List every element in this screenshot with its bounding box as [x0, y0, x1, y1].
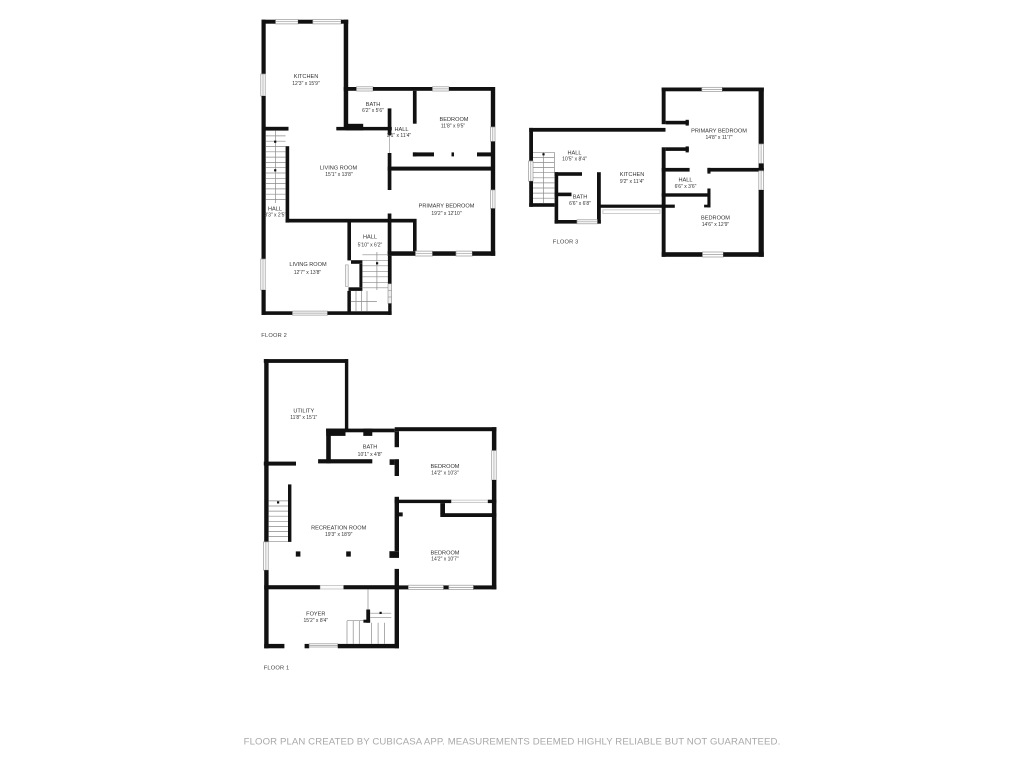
svg-text:10'1" x 4'8": 10'1" x 4'8"	[358, 452, 383, 458]
svg-text:6'6" x 6'8": 6'6" x 6'8"	[569, 201, 591, 207]
svg-text:FLOOR 2: FLOOR 2	[261, 333, 287, 339]
svg-text:19'3" x 18'9": 19'3" x 18'9"	[325, 532, 353, 538]
svg-text:14'6" x 12'9": 14'6" x 12'9"	[702, 222, 730, 228]
svg-text:15'1" x 13'8": 15'1" x 13'8"	[325, 172, 353, 178]
svg-text:FLOOR 3: FLOOR 3	[553, 239, 579, 245]
svg-text:5'10" x 6'2": 5'10" x 6'2"	[358, 242, 383, 248]
svg-text:19'2" x 12'10": 19'2" x 12'10"	[431, 211, 461, 217]
svg-text:BATH: BATH	[573, 194, 588, 200]
svg-text:6'2" x 5'6": 6'2" x 5'6"	[362, 108, 384, 114]
svg-text:BEDROOM: BEDROOM	[431, 464, 460, 470]
svg-text:14'2" x 10'7": 14'2" x 10'7"	[431, 556, 459, 562]
svg-text:11'8" x 15'1": 11'8" x 15'1"	[290, 415, 317, 421]
svg-text:KITCHEN: KITCHEN	[620, 172, 645, 178]
svg-text:LIVING ROOM: LIVING ROOM	[320, 165, 358, 171]
svg-text:FLOOR PLAN CREATED BY CUBICASA: FLOOR PLAN CREATED BY CUBICASA APP. MEAS…	[244, 737, 781, 748]
svg-text:UTILITY: UTILITY	[293, 408, 314, 414]
svg-text:12'7" x 13'8": 12'7" x 13'8"	[294, 270, 322, 276]
svg-text:FLOOR 1: FLOOR 1	[264, 665, 290, 671]
svg-text:PRIMARY BEDROOM: PRIMARY BEDROOM	[419, 203, 475, 209]
svg-text:HALL: HALL	[363, 234, 377, 240]
svg-text:10'5" x 8'4": 10'5" x 8'4"	[562, 157, 587, 163]
svg-text:RECREATION ROOM: RECREATION ROOM	[311, 526, 367, 532]
svg-text:11'8" x 9'5": 11'8" x 9'5"	[441, 123, 465, 129]
svg-text:15'2" x 8'4": 15'2" x 8'4"	[303, 618, 328, 624]
svg-text:9'2" x 11'4": 9'2" x 11'4"	[620, 179, 644, 185]
svg-text:14'2" x 10'3": 14'2" x 10'3"	[431, 470, 459, 476]
svg-text:PRIMARY BEDROOM: PRIMARY BEDROOM	[691, 129, 747, 135]
svg-text:BATH: BATH	[363, 445, 378, 451]
svg-text:BEDROOM: BEDROOM	[701, 215, 730, 221]
svg-text:HALL: HALL	[679, 178, 693, 184]
svg-text:6'6" x 3'6": 6'6" x 3'6"	[675, 184, 697, 190]
svg-text:FOYER: FOYER	[306, 612, 325, 618]
svg-text:HALL: HALL	[568, 150, 582, 156]
svg-text:12'3" x 15'9": 12'3" x 15'9"	[292, 81, 320, 87]
svg-text:3'1" x 11'4": 3'1" x 11'4"	[387, 133, 411, 139]
svg-text:KITCHEN: KITCHEN	[294, 74, 319, 80]
svg-text:BEDROOM: BEDROOM	[440, 117, 469, 123]
svg-text:3'3" x 2'5": 3'3" x 2'5"	[264, 212, 286, 218]
svg-text:14'8" x 11'7": 14'8" x 11'7"	[705, 135, 732, 141]
svg-text:HALL: HALL	[395, 127, 409, 133]
svg-text:LIVING ROOM: LIVING ROOM	[289, 262, 327, 268]
